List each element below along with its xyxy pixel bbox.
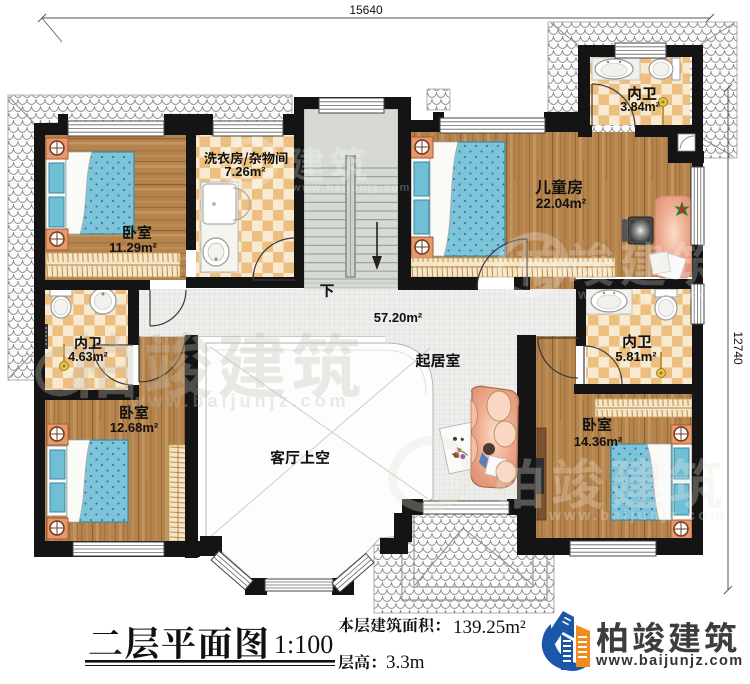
svg-text:5.81m²: 5.81m² [615,349,657,364]
svg-text:139.25m²: 139.25m² [453,617,526,638]
svg-text:3.84m²: 3.84m² [620,100,660,114]
svg-text:www.baijunjz.com: www.baijunjz.com [291,182,411,194]
svg-text:4.63m²: 4.63m² [68,350,108,364]
svg-text:12.68m²: 12.68m² [110,420,159,435]
svg-text:3.3m: 3.3m [386,652,425,673]
svg-text:www.baijunjz.com: www.baijunjz.com [564,286,726,302]
svg-text:www.baijunjz.com: www.baijunjz.com [548,507,726,524]
svg-text:14.36m²: 14.36m² [574,434,623,449]
svg-text:15640: 15640 [349,3,383,17]
svg-text:www.baijunjz.com: www.baijunjz.com [595,653,744,669]
svg-text:1:100: 1:100 [274,630,333,659]
svg-text:57.20m²: 57.20m² [374,310,423,325]
svg-text:22.04m²: 22.04m² [536,196,587,211]
svg-text:7.26m²: 7.26m² [224,164,266,179]
svg-text:www.baijunjz.com: www.baijunjz.com [129,391,349,411]
svg-text:12740: 12740 [731,331,745,365]
svg-text:11.29m²: 11.29m² [109,240,157,255]
